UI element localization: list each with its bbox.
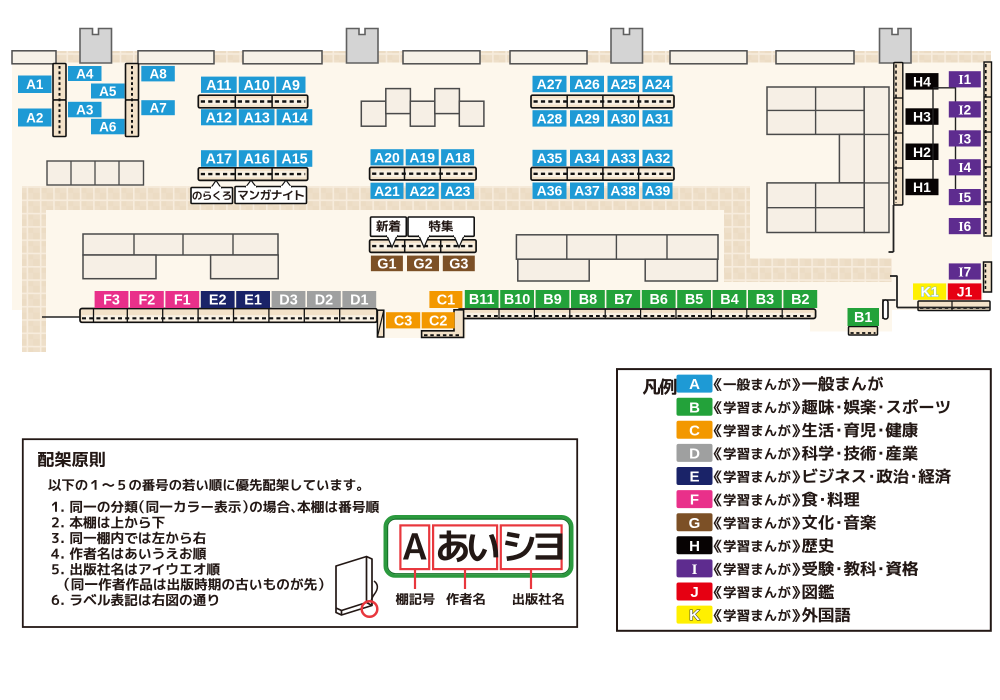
svg-text:F: F bbox=[690, 492, 699, 509]
svg-text:A37: A37 bbox=[574, 183, 600, 199]
svg-text:A15: A15 bbox=[281, 152, 307, 168]
svg-text:A5: A5 bbox=[99, 84, 117, 99]
svg-text:G: G bbox=[689, 515, 701, 532]
svg-text:I1: I1 bbox=[958, 72, 971, 87]
svg-text:H2: H2 bbox=[913, 144, 931, 160]
svg-text:A39: A39 bbox=[645, 183, 671, 199]
svg-text:A28: A28 bbox=[537, 110, 563, 126]
svg-text:H1: H1 bbox=[913, 179, 931, 195]
svg-text:C3: C3 bbox=[394, 314, 412, 330]
svg-text:B1: B1 bbox=[854, 310, 872, 326]
svg-text:B2: B2 bbox=[791, 292, 809, 308]
svg-text:A18: A18 bbox=[445, 149, 471, 165]
svg-text:A10: A10 bbox=[244, 78, 270, 94]
svg-text:I2: I2 bbox=[958, 102, 971, 117]
svg-text:A30: A30 bbox=[610, 110, 636, 126]
svg-text:D3: D3 bbox=[279, 293, 297, 309]
svg-text:I6: I6 bbox=[958, 219, 971, 234]
svg-text:A25: A25 bbox=[610, 76, 636, 92]
svg-text:I7: I7 bbox=[958, 264, 971, 279]
svg-text:C2: C2 bbox=[429, 314, 447, 330]
svg-text:D2: D2 bbox=[315, 293, 333, 309]
svg-text:J1: J1 bbox=[957, 284, 973, 300]
svg-text:K: K bbox=[689, 607, 700, 624]
svg-text:A8: A8 bbox=[149, 67, 167, 82]
svg-text:A6: A6 bbox=[99, 119, 117, 134]
svg-text:B8: B8 bbox=[579, 292, 597, 308]
svg-text:A29: A29 bbox=[574, 110, 600, 126]
svg-text:B: B bbox=[689, 399, 700, 416]
svg-text:A23: A23 bbox=[445, 183, 471, 199]
svg-text:A4: A4 bbox=[76, 66, 94, 81]
svg-text:A33: A33 bbox=[610, 150, 636, 166]
svg-text:A38: A38 bbox=[610, 183, 636, 199]
svg-text:I4: I4 bbox=[958, 160, 971, 175]
svg-text:H: H bbox=[689, 538, 700, 555]
svg-text:A9: A9 bbox=[282, 78, 300, 94]
svg-text:F3: F3 bbox=[103, 293, 120, 309]
svg-text:B7: B7 bbox=[614, 292, 632, 308]
svg-text:D1: D1 bbox=[350, 293, 368, 309]
svg-text:B3: B3 bbox=[756, 292, 774, 308]
svg-text:B11: B11 bbox=[469, 292, 495, 308]
svg-text:E2: E2 bbox=[209, 293, 227, 309]
svg-text:G1: G1 bbox=[377, 257, 396, 273]
svg-text:A27: A27 bbox=[537, 76, 563, 92]
svg-text:I3: I3 bbox=[958, 131, 971, 146]
svg-text:A12: A12 bbox=[206, 110, 232, 126]
svg-text:A35: A35 bbox=[537, 150, 563, 166]
svg-text:A14: A14 bbox=[281, 110, 307, 126]
svg-text:C1: C1 bbox=[437, 293, 455, 309]
svg-text:A31: A31 bbox=[645, 110, 671, 126]
svg-text:A34: A34 bbox=[574, 150, 600, 166]
svg-text:A21: A21 bbox=[374, 183, 400, 199]
svg-text:A1: A1 bbox=[26, 77, 44, 92]
svg-text:A20: A20 bbox=[374, 149, 400, 165]
svg-text:B10: B10 bbox=[504, 292, 530, 308]
svg-text:K1: K1 bbox=[921, 284, 939, 300]
svg-text:A36: A36 bbox=[537, 183, 563, 199]
svg-text:B5: B5 bbox=[685, 292, 703, 308]
svg-text:F2: F2 bbox=[139, 293, 156, 309]
svg-text:A24: A24 bbox=[645, 76, 671, 92]
svg-text:E: E bbox=[689, 469, 699, 486]
svg-text:A3: A3 bbox=[76, 102, 94, 117]
svg-text:J: J bbox=[690, 584, 698, 601]
svg-text:A13: A13 bbox=[244, 110, 270, 126]
svg-text:A11: A11 bbox=[206, 78, 231, 94]
svg-text:A2: A2 bbox=[26, 110, 43, 125]
svg-text:A22: A22 bbox=[409, 183, 435, 199]
svg-text:A7: A7 bbox=[149, 101, 166, 116]
svg-text:D: D bbox=[689, 446, 700, 463]
svg-text:F1: F1 bbox=[174, 293, 191, 309]
svg-text:A16: A16 bbox=[244, 152, 270, 168]
svg-text:H3: H3 bbox=[913, 109, 931, 125]
svg-text:I: I bbox=[692, 562, 698, 578]
svg-text:A32: A32 bbox=[645, 150, 671, 166]
svg-text:E1: E1 bbox=[244, 293, 262, 309]
svg-text:A17: A17 bbox=[206, 152, 232, 168]
svg-text:B6: B6 bbox=[649, 292, 667, 308]
svg-text:A26: A26 bbox=[574, 76, 600, 92]
svg-text:I5: I5 bbox=[958, 190, 971, 205]
svg-text:B4: B4 bbox=[720, 292, 738, 308]
svg-text:A19: A19 bbox=[409, 149, 435, 165]
svg-text:G2: G2 bbox=[413, 257, 432, 273]
svg-text:G3: G3 bbox=[449, 257, 468, 273]
svg-text:B9: B9 bbox=[543, 292, 561, 308]
svg-text:H4: H4 bbox=[913, 73, 931, 89]
svg-text:A: A bbox=[689, 376, 700, 393]
svg-text:C: C bbox=[689, 422, 700, 439]
